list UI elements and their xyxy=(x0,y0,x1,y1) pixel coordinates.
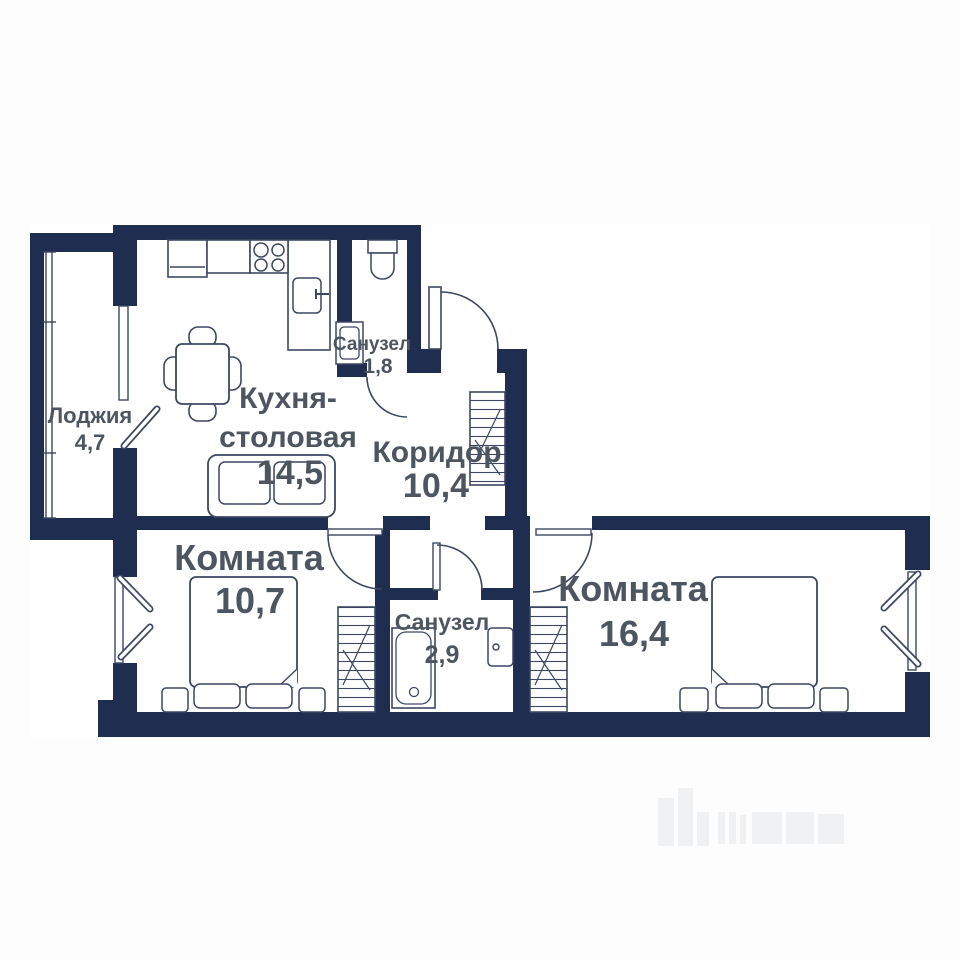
wall xyxy=(113,663,137,712)
wall xyxy=(30,233,44,540)
wall xyxy=(407,225,421,349)
window xyxy=(115,577,123,663)
entrance-door-leaf xyxy=(429,287,441,349)
nightstand xyxy=(162,688,188,712)
wall xyxy=(481,588,513,600)
toilet xyxy=(368,240,397,279)
corridor-area: 10,4 xyxy=(403,467,469,505)
bathroom-top-label: Санузел xyxy=(333,334,411,355)
door-leaf xyxy=(328,529,382,535)
bedroom-right-area: 16,4 xyxy=(599,613,669,654)
door-leaf xyxy=(433,543,440,590)
pillow xyxy=(194,684,240,708)
floor-plan: Лоджия 4,7 Кухня- столовая 14,5 Санузел … xyxy=(0,0,960,960)
wall xyxy=(98,712,930,737)
wall xyxy=(113,225,137,306)
washbasin-bottom xyxy=(488,628,513,666)
nightstand xyxy=(299,688,325,712)
kitchen-loggia-window xyxy=(119,306,128,400)
floor-plan-canvas: Лоджия 4,7 Кухня- столовая 14,5 Санузел … xyxy=(0,0,960,960)
wall xyxy=(30,518,115,540)
nightstand xyxy=(680,688,708,712)
kitchen-label-line1: Кухня- xyxy=(239,382,337,415)
counter-section xyxy=(168,240,207,277)
dining-table xyxy=(176,344,229,404)
loggia-label: Лоджия xyxy=(48,403,133,428)
pillow xyxy=(768,684,814,708)
wall xyxy=(485,516,530,530)
toilet-tank xyxy=(368,240,397,253)
bed xyxy=(712,577,817,687)
nightstand xyxy=(820,688,848,712)
wall xyxy=(113,225,421,240)
loggia-area: 4,7 xyxy=(75,430,106,455)
wall xyxy=(113,530,137,577)
bathroom-top-area: 1,8 xyxy=(363,355,393,378)
wall xyxy=(375,588,438,600)
wall xyxy=(592,516,930,530)
bedroom-right-label: Комната xyxy=(558,568,709,609)
toilet-bowl xyxy=(371,253,394,279)
wall xyxy=(407,349,441,373)
wall xyxy=(905,516,930,570)
wall xyxy=(113,448,137,518)
wall xyxy=(113,516,328,530)
bathroom-bottom-area: 2,9 xyxy=(425,641,460,669)
wardrobe-bedroom-left xyxy=(338,607,375,712)
stove xyxy=(250,240,288,273)
watermark xyxy=(658,788,844,846)
bedroom-left-area: 10,7 xyxy=(215,580,285,621)
wall xyxy=(375,530,390,712)
bedroom-left-label: Комната xyxy=(174,537,325,578)
wall xyxy=(383,516,430,530)
wall xyxy=(513,530,530,712)
counter-section xyxy=(207,240,250,273)
wall xyxy=(505,373,527,530)
bathroom-bottom-label: Санузел xyxy=(395,609,490,635)
wall xyxy=(497,349,527,373)
wardrobe-bedroom-right xyxy=(530,607,567,712)
wall xyxy=(98,700,115,712)
pillow xyxy=(716,684,762,708)
corridor-label: Коридор xyxy=(372,436,501,469)
wall xyxy=(905,672,930,712)
kitchen-label-line2: столовая xyxy=(219,421,357,454)
kitchen-area: 14,5 xyxy=(257,454,323,492)
door-leaf xyxy=(536,529,591,535)
pillow xyxy=(246,684,292,708)
